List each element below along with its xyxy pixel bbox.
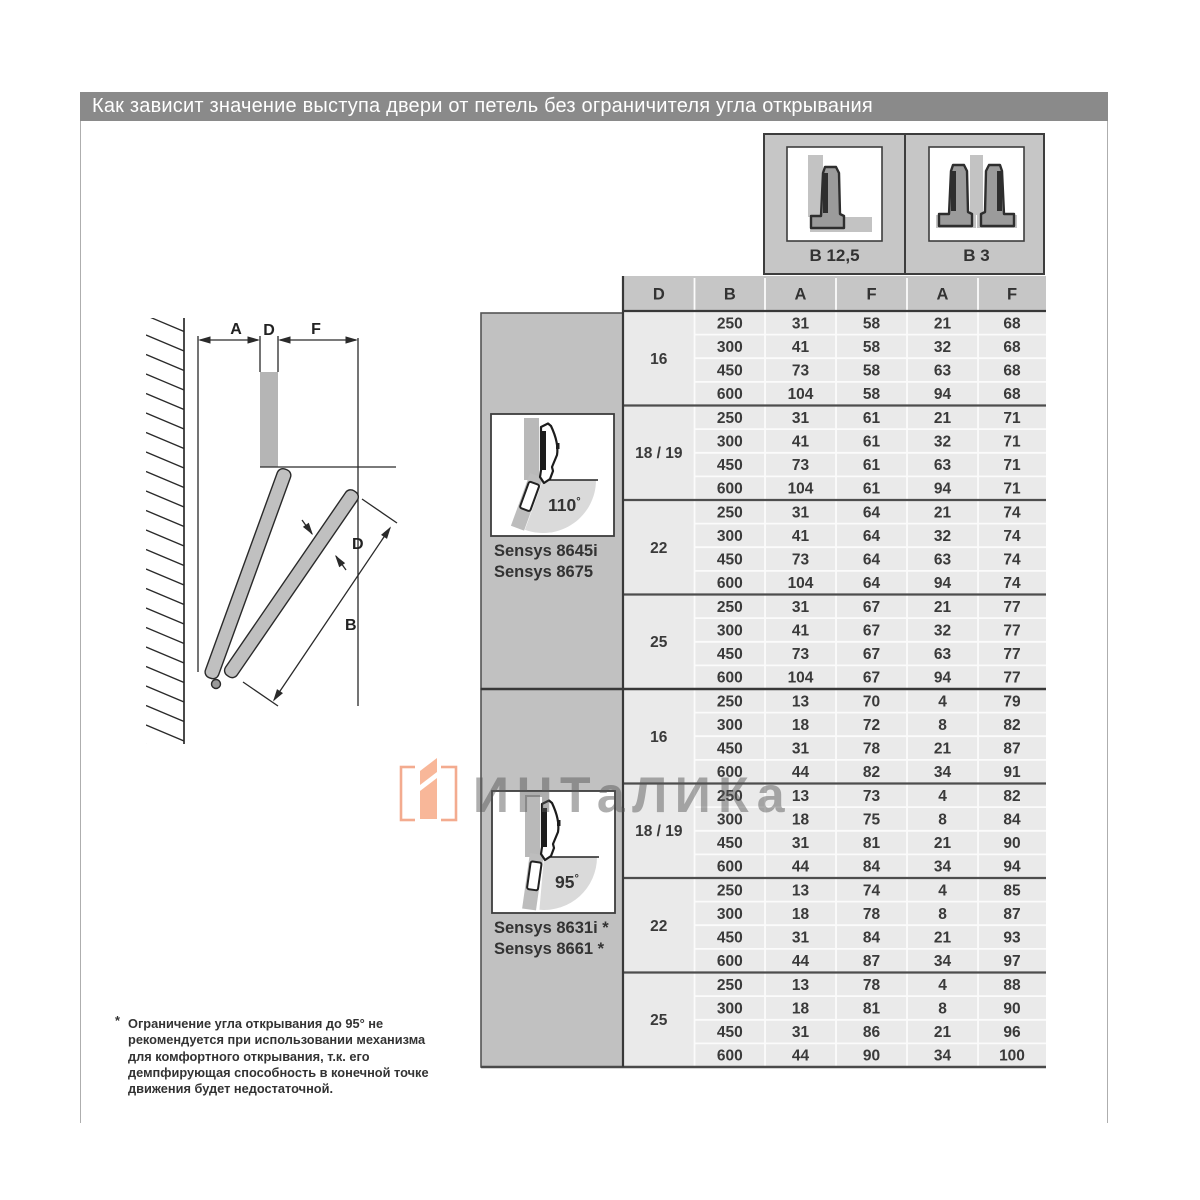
svg-text:450: 450 [717,363,743,380]
svg-text:600: 600 [717,481,743,498]
svg-text:82: 82 [863,764,880,781]
svg-text:68: 68 [1003,339,1021,356]
svg-text:61: 61 [863,410,881,427]
svg-text:600: 600 [717,1048,743,1065]
svg-text:74: 74 [1003,504,1021,521]
svg-text:250: 250 [717,977,743,994]
svg-text:58: 58 [863,315,881,332]
svg-text:16: 16 [650,351,668,368]
svg-text:78: 78 [863,977,881,994]
svg-text:104: 104 [788,386,814,403]
svg-text:68: 68 [1003,386,1021,403]
svg-text:300: 300 [717,433,743,450]
svg-text:22: 22 [650,918,667,935]
svg-text:B: B [345,617,357,634]
svg-text:97: 97 [1003,953,1020,970]
svg-text:85: 85 [1003,882,1021,899]
svg-text:81: 81 [863,1000,881,1017]
svg-text:81: 81 [863,835,881,852]
svg-text:Sensys 8661 *: Sensys 8661 * [494,940,605,958]
svg-text:61: 61 [863,457,881,474]
svg-text:31: 31 [792,1024,810,1041]
svg-text:41: 41 [792,528,810,545]
svg-text:96: 96 [1003,1024,1021,1041]
svg-text:79: 79 [1003,693,1021,710]
svg-text:250: 250 [717,693,743,710]
svg-text:450: 450 [717,741,743,758]
svg-text:67: 67 [863,670,880,687]
svg-text:58: 58 [863,386,881,403]
svg-text:73: 73 [792,646,810,663]
svg-text:34: 34 [934,1048,952,1065]
svg-text:D: D [352,536,364,553]
svg-text:93: 93 [1003,930,1021,947]
svg-text:4: 4 [938,693,947,710]
svg-text:71: 71 [1003,457,1021,474]
svg-text:300: 300 [717,906,743,923]
svg-text:77: 77 [1003,622,1020,639]
svg-text:32: 32 [934,339,951,356]
svg-text:13: 13 [792,977,810,994]
svg-text:100: 100 [999,1048,1025,1065]
svg-text:71: 71 [1003,433,1021,450]
svg-text:18: 18 [792,1000,810,1017]
svg-text:87: 87 [1003,906,1020,923]
svg-text:32: 32 [934,622,951,639]
svg-text:87: 87 [863,953,880,970]
svg-text:22: 22 [650,540,667,557]
svg-text:64: 64 [863,528,881,545]
svg-text:21: 21 [934,315,952,332]
svg-text:600: 600 [717,575,743,592]
svg-text:300: 300 [717,528,743,545]
svg-text:600: 600 [717,953,743,970]
svg-text:32: 32 [934,433,951,450]
svg-text:4: 4 [938,882,947,899]
svg-text:21: 21 [934,930,952,947]
svg-text:31: 31 [792,504,810,521]
svg-text:82: 82 [1003,717,1020,734]
svg-text:4: 4 [938,788,947,805]
svg-text:18 / 19: 18 / 19 [635,445,683,462]
svg-text:250: 250 [717,504,743,521]
svg-text:63: 63 [934,363,952,380]
svg-text:450: 450 [717,552,743,569]
svg-text:34: 34 [934,859,952,876]
svg-text:73: 73 [792,363,810,380]
svg-text:450: 450 [717,646,743,663]
svg-text:31: 31 [792,599,810,616]
svg-text:44: 44 [792,953,810,970]
svg-text:D: D [263,322,275,339]
svg-text:Sensys 8645i: Sensys 8645i [494,542,598,560]
svg-text:94: 94 [934,386,952,403]
svg-text:25: 25 [650,1012,668,1029]
svg-text:74: 74 [863,882,881,899]
svg-text:64: 64 [863,552,881,569]
svg-text:32: 32 [934,528,951,545]
svg-text:600: 600 [717,670,743,687]
svg-text:84: 84 [1003,811,1021,828]
svg-text:A: A [795,286,807,304]
svg-text:18: 18 [792,717,810,734]
svg-text:63: 63 [934,646,952,663]
svg-text:61: 61 [863,433,881,450]
svg-text:34: 34 [934,953,952,970]
svg-text:71: 71 [1003,410,1021,427]
svg-text:64: 64 [863,504,881,521]
svg-text:74: 74 [1003,552,1021,569]
svg-text:91: 91 [1003,764,1021,781]
svg-text:300: 300 [717,622,743,639]
svg-text:78: 78 [863,906,881,923]
svg-text:300: 300 [717,1000,743,1017]
svg-text:Sensys 8631i *: Sensys 8631i * [494,919,609,937]
svg-text:94: 94 [934,575,952,592]
svg-text:71: 71 [1003,481,1021,498]
svg-text:64: 64 [863,575,881,592]
svg-text:8: 8 [938,717,947,734]
svg-text:450: 450 [717,930,743,947]
svg-text:8: 8 [938,906,947,923]
svg-text:84: 84 [863,930,881,947]
svg-text:84: 84 [863,859,881,876]
svg-text:74: 74 [1003,575,1021,592]
svg-text:44: 44 [792,764,810,781]
svg-text:61: 61 [863,481,881,498]
svg-text:250: 250 [717,410,743,427]
svg-text:94: 94 [934,481,952,498]
svg-text:600: 600 [717,859,743,876]
svg-text:34: 34 [934,764,952,781]
svg-text:41: 41 [792,433,810,450]
svg-text:18: 18 [792,906,810,923]
svg-text:73: 73 [792,457,810,474]
svg-text:ИНТаЛИКа: ИНТаЛИКа [473,767,792,823]
svg-text:94: 94 [1003,859,1021,876]
svg-text:13: 13 [792,788,810,805]
svg-text:13: 13 [792,693,810,710]
svg-text:77: 77 [1003,646,1020,663]
svg-text:31: 31 [792,835,810,852]
svg-text:67: 67 [863,646,880,663]
svg-text:77: 77 [1003,599,1020,616]
svg-text:58: 58 [863,339,881,356]
svg-text:104: 104 [788,670,814,687]
svg-text:F: F [311,321,321,338]
svg-text:A: A [937,286,949,304]
svg-text:250: 250 [717,882,743,899]
svg-text:21: 21 [934,835,952,852]
svg-text:B 3: B 3 [963,246,989,265]
svg-text:31: 31 [792,741,810,758]
svg-text:75: 75 [863,811,881,828]
svg-text:90: 90 [1003,1000,1020,1017]
svg-text:31: 31 [792,930,810,947]
svg-text:450: 450 [717,1024,743,1041]
svg-text:41: 41 [792,339,810,356]
svg-text:25: 25 [650,634,668,651]
svg-text:41: 41 [792,622,810,639]
svg-text:110°: 110° [548,495,581,515]
svg-text:450: 450 [717,835,743,852]
svg-text:600: 600 [717,386,743,403]
svg-text:31: 31 [792,315,810,332]
svg-text:13: 13 [792,882,810,899]
svg-text:104: 104 [788,481,814,498]
svg-text:D: D [653,286,665,304]
svg-text:300: 300 [717,339,743,356]
svg-text:F: F [1007,286,1017,304]
svg-text:A: A [230,321,242,338]
svg-text:8: 8 [938,1000,947,1017]
svg-text:74: 74 [1003,528,1021,545]
svg-text:70: 70 [863,693,880,710]
svg-text:63: 63 [934,552,952,569]
svg-text:86: 86 [863,1024,881,1041]
svg-text:77: 77 [1003,670,1020,687]
svg-text:73: 73 [863,788,881,805]
svg-text:58: 58 [863,363,881,380]
svg-text:104: 104 [788,575,814,592]
svg-text:63: 63 [934,457,952,474]
svg-text:B: B [724,286,736,304]
svg-text:18 / 19: 18 / 19 [635,823,683,840]
svg-text:250: 250 [717,315,743,332]
svg-text:250: 250 [717,599,743,616]
svg-text:68: 68 [1003,363,1021,380]
svg-text:87: 87 [1003,741,1020,758]
svg-text:8: 8 [938,811,947,828]
svg-text:67: 67 [863,622,880,639]
svg-text:68: 68 [1003,315,1021,332]
svg-text:73: 73 [792,552,810,569]
svg-text:82: 82 [1003,788,1020,805]
svg-text:44: 44 [792,859,810,876]
svg-text:18: 18 [792,811,810,828]
svg-text:21: 21 [934,410,952,427]
svg-text:88: 88 [1003,977,1021,994]
svg-text:44: 44 [792,1048,810,1065]
svg-text:300: 300 [717,717,743,734]
svg-text:78: 78 [863,741,881,758]
svg-text:B 12,5: B 12,5 [809,246,859,265]
svg-text:90: 90 [863,1048,880,1065]
svg-text:94: 94 [934,670,952,687]
svg-text:72: 72 [863,717,880,734]
svg-text:16: 16 [650,729,668,746]
svg-text:21: 21 [934,599,952,616]
svg-text:450: 450 [717,457,743,474]
svg-text:90: 90 [1003,835,1020,852]
svg-text:21: 21 [934,504,952,521]
svg-text:4: 4 [938,977,947,994]
svg-text:21: 21 [934,741,952,758]
svg-text:F: F [866,286,876,304]
svg-text:31: 31 [792,410,810,427]
svg-text:21: 21 [934,1024,952,1041]
svg-text:Sensys 8675: Sensys 8675 [494,563,593,581]
svg-text:67: 67 [863,599,880,616]
